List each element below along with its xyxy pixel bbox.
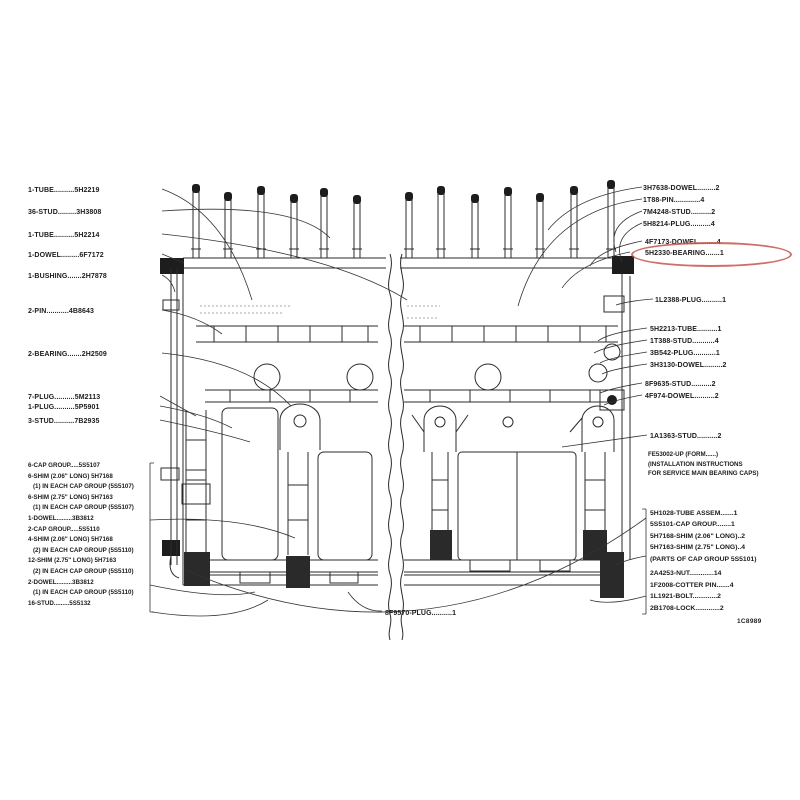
- part-label: 3H7638-DOWEL.........2: [643, 184, 720, 193]
- part-label: 1-DOWEL.........3B3812: [28, 514, 134, 525]
- part-label: 2-DOWEL.........3B3812: [28, 578, 134, 589]
- part-label: 3B542-PLUG...........1: [650, 349, 720, 358]
- note-line: FOR SERVICE MAIN BEARING CAPS): [648, 469, 759, 479]
- part-label: 12-SHIM (2.75" LONG) 5H7163: [28, 556, 134, 567]
- parts-diagram-page: 1-TUBE..........5H2219 36-STUD.........3…: [0, 0, 800, 800]
- part-label: 3-STUD..........7B2935: [28, 417, 99, 426]
- part-label: 2-PIN...........4B8643: [28, 307, 94, 316]
- part-label: 1-PLUG..........5P5901: [28, 403, 99, 412]
- part-label: 5H2213-TUBE..........1: [650, 325, 721, 334]
- part-label: 2A4253-NUT.............14: [650, 568, 733, 580]
- part-label: 1T88-PIN.............4: [643, 196, 704, 205]
- part-label: (2) IN EACH CAP GROUP (5S5110): [28, 546, 134, 557]
- part-label: 1A1363-STUD..........2: [650, 432, 721, 441]
- part-label: 1F2008-COTTER PIN.......4: [650, 580, 733, 592]
- part-label: 1-BUSHING.......2H7878: [28, 272, 107, 281]
- part-label: 1-TUBE..........5H2219: [28, 186, 99, 195]
- note-line: FE53002-UP (FORM......): [648, 450, 759, 460]
- part-label: 2-CAP GROUP.....5S5110: [28, 525, 134, 536]
- part-label: 1L2388-PLUG..........1: [655, 296, 726, 305]
- part-label: 8F9570-PLUG..........1: [385, 609, 456, 618]
- part-label: 1-DOWEL.........6F7172: [28, 251, 104, 260]
- part-label: 1L1921-BOLT.............2: [650, 591, 733, 603]
- part-label: 7-PLUG..........5M2113: [28, 393, 100, 402]
- part-label: 5H7168-SHIM (2.06" LONG)..2: [650, 531, 757, 542]
- part-label: (PARTS OF CAP GROUP 5S5101): [650, 554, 757, 565]
- part-label: 1-TUBE..........5H2214: [28, 231, 99, 240]
- cap-group-label-block: 6-CAP GROUP.....5S5107 6-SHIM (2.06" LON…: [28, 461, 134, 609]
- part-label: 3H3130-DOWEL.........2: [650, 361, 727, 370]
- part-label: 8F9635-STUD..........2: [645, 380, 716, 389]
- part-label: 4F974-DOWEL..........2: [645, 392, 719, 401]
- part-label: 5S5101-CAP GROUP........1: [650, 519, 757, 530]
- part-label: (1) IN EACH CAP GROUP (5S5107): [28, 503, 134, 514]
- part-label: 7M4248-STUD..........2: [643, 208, 715, 217]
- part-label: 5H8214-PLUG..........4: [643, 220, 715, 229]
- note-line: (INSTALLATION INSTRUCTIONS: [648, 460, 759, 470]
- part-label: 36-STUD.........3H3808: [28, 208, 101, 217]
- part-label: 5H7163-SHIM (2.75" LONG)..4: [650, 542, 757, 553]
- part-label: (2) IN EACH CAP GROUP (5S5110): [28, 567, 134, 578]
- part-label: 5H1028-TUBE ASSEM.......1: [650, 508, 757, 519]
- part-label: 2-BEARING.......2H2509: [28, 350, 107, 359]
- part-label: (1) IN EACH CAP GROUP (5S5107): [28, 482, 134, 493]
- part-label: 16-STUD.........5S5132: [28, 599, 134, 610]
- figure-number: 1C8989: [737, 618, 762, 625]
- cap-group-label-block-right: 5H1028-TUBE ASSEM.......1 5S5101-CAP GRO…: [650, 508, 757, 565]
- part-label: 6-SHIM (2.75" LONG) 5H7163: [28, 493, 134, 504]
- part-label: (1) IN EACH CAP GROUP (5S5110): [28, 588, 134, 599]
- part-label: 1T388-STUD...........4: [650, 337, 719, 346]
- note-block: FE53002-UP (FORM......) (INSTALLATION IN…: [648, 450, 759, 479]
- fastener-label-block: 2A4253-NUT.............14 1F2008-COTTER …: [650, 568, 733, 614]
- part-label: 2B1708-LOCK.............2: [650, 603, 733, 615]
- part-label: 4-SHIM (2.06" LONG) 5H7168: [28, 535, 134, 546]
- part-label: 6-CAP GROUP.....5S5107: [28, 461, 134, 472]
- part-label: 6-SHIM (2.06" LONG) 5H7168: [28, 472, 134, 483]
- highlighted-part-label: 5H2330-BEARING.......1: [645, 249, 724, 258]
